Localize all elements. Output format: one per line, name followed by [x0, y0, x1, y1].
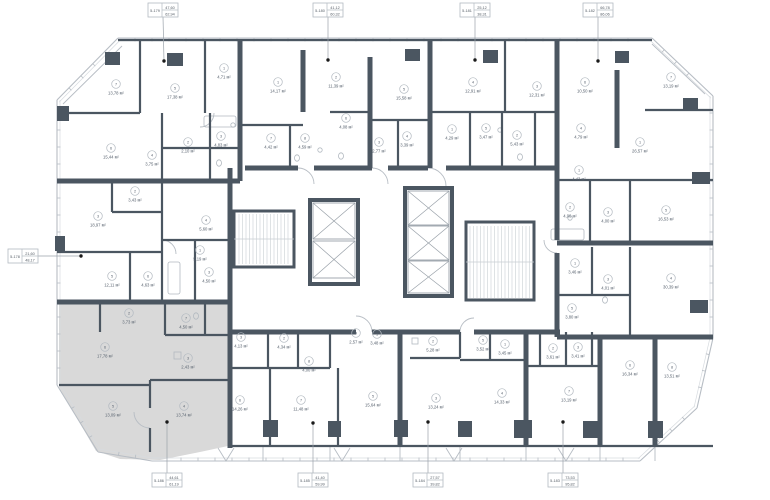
room-area: 30,39 м² [663, 285, 680, 290]
room-number: 5 [372, 394, 374, 398]
elevator-shaft [313, 241, 355, 278]
elevator-shaft [313, 203, 355, 239]
room-number: 5 [485, 126, 487, 130]
room-area: 17,38 м² [167, 95, 184, 100]
callout-area-bottom: 60,32 [330, 13, 340, 17]
room-area: 3,61 м² [546, 355, 560, 360]
room-area: 5,43 м² [510, 142, 524, 147]
room-number: 3 [187, 356, 189, 360]
callout-unit-id: 5-179 [150, 9, 160, 13]
column [57, 106, 69, 121]
room-number: 4 [205, 218, 207, 222]
callout-area-bottom: 48,17 [25, 259, 35, 263]
column [55, 236, 65, 251]
staircase-left [234, 211, 294, 267]
room-area: 4,43 м² [572, 177, 586, 182]
callout-area-top: 41,12 [330, 6, 340, 10]
staircase-right [466, 222, 534, 300]
room-area: 5,28 м² [426, 348, 440, 353]
room-area: 11,39 м² [328, 84, 344, 89]
room-number: 3 [208, 270, 210, 274]
room-area: 13,19 м² [561, 398, 578, 403]
room-number: 3 [577, 345, 579, 349]
callout-area-bottom: 62,94 [165, 13, 175, 17]
callout-area-top: 27,57 [430, 476, 440, 480]
room-area: 2,43 м² [181, 365, 195, 370]
callout-unit-id: 5-178 [10, 255, 20, 259]
room-number: 4 [472, 80, 474, 84]
room-number: 1 [376, 332, 378, 336]
room-number: 3 [536, 84, 538, 88]
room-number: 5 [111, 274, 113, 278]
callout-area-top: 41,40 [315, 476, 325, 480]
room-number: 5 [482, 338, 484, 342]
room-area: 5,19 м² [193, 257, 207, 262]
room-number: 2 [569, 205, 571, 209]
column [514, 420, 532, 438]
room-area: 13,78 м² [108, 91, 125, 96]
room-number: 5 [571, 306, 573, 310]
callout-dot [596, 59, 599, 62]
callout-area-top: 21,60 [25, 252, 35, 256]
room-number: 3 [435, 396, 437, 400]
room-area: 13,24 м² [428, 405, 445, 410]
room-number: 3 [378, 140, 380, 144]
room-number: 3 [607, 277, 609, 281]
callout-dot [473, 58, 476, 61]
room-area: 4,00 м² [563, 214, 577, 219]
room-area: 4,29 м² [445, 136, 459, 141]
callout-area-bottom: 95,82 [565, 483, 575, 487]
room-area: 13,19 м² [663, 84, 680, 89]
room-number: 5 [174, 86, 176, 90]
room-number: 7 [300, 398, 302, 402]
room-area: 4,13 м² [234, 344, 248, 349]
callout-dot [162, 59, 165, 62]
room-area: 10,50 м² [577, 89, 594, 94]
room-area: 5,60 м² [199, 227, 213, 232]
room-number: 1 [574, 261, 576, 265]
column [405, 49, 420, 61]
room-number: 7 [185, 316, 187, 320]
room-number: 4 [580, 126, 582, 130]
column [648, 421, 663, 438]
elevator-shaft [408, 226, 449, 260]
room-number: 5 [403, 87, 405, 91]
room-area: 12,91 м² [465, 89, 482, 94]
room-area: 13,51 м² [664, 374, 681, 379]
room-number: 7 [568, 389, 570, 393]
elevator-shaft [408, 191, 449, 225]
column [615, 51, 629, 63]
column [167, 53, 183, 66]
callout-area-top: 47,60 [165, 6, 175, 10]
room-number: 2 [552, 346, 554, 350]
room-area: 13,74 м² [176, 413, 193, 418]
room-number: 7 [270, 136, 272, 140]
room-area: 3,73 м² [122, 320, 136, 325]
column [683, 98, 698, 111]
callout-area-bottom: 38,31 [477, 13, 487, 17]
room-area: 11,48 м² [293, 407, 309, 412]
callout-area-bottom: 86,06 [600, 13, 610, 17]
room-number: 6 [584, 80, 586, 84]
callout-area-bottom: 59,99 [315, 483, 325, 487]
callout-unit-id: 5-185 [300, 479, 310, 483]
callout-dot [79, 254, 82, 257]
room-area: 3,52 м² [476, 347, 490, 352]
room-number: 7 [115, 82, 117, 86]
room-area: 16,34 м² [622, 372, 639, 377]
floor-plan-page: 713,78 м²517,38 м²14,71 м²615,44 м²22,10… [0, 0, 770, 500]
room-number: 2 [283, 336, 285, 340]
callout-dot [326, 58, 329, 61]
column [692, 172, 710, 184]
room-area: 14,17 м² [270, 89, 287, 94]
room-area: 3,75 м² [145, 162, 159, 167]
column [105, 52, 120, 65]
room-area: 4,42 м² [264, 145, 278, 150]
room-area: 14,26 м² [232, 407, 249, 412]
room-area: 3,41 м² [571, 354, 585, 359]
elevator-shaft [408, 261, 449, 293]
room-number: 4 [355, 331, 357, 335]
callout-area-top: 66,78 [600, 6, 610, 10]
room-number: 2 [335, 75, 337, 79]
room-area: 4,50 м² [179, 325, 193, 330]
room-number: 4 [183, 404, 185, 408]
room-area: 15,44 м² [103, 155, 120, 160]
room-area: 18,97 м² [90, 223, 107, 228]
callout-unit-id: 5-184 [415, 479, 425, 483]
room-area: 4,01 м² [601, 286, 615, 291]
room-area: 4,00 м² [601, 219, 615, 224]
callout-unit-id: 5-182 [585, 9, 595, 13]
room-area: 2,77 м² [372, 149, 386, 154]
column [328, 421, 341, 437]
callout-area-top: 44,61 [169, 476, 179, 480]
room-area: 16,53 м² [658, 217, 675, 222]
room-number: 7 [670, 75, 672, 79]
callout-area-bottom: 39,82 [430, 483, 440, 487]
room-number: 1 [451, 127, 453, 131]
callout-dot [311, 421, 314, 424]
callout-dot [561, 420, 564, 423]
room-number: 2 [128, 311, 130, 315]
floor-plan: 713,78 м²517,38 м²14,71 м²615,44 м²22,10… [0, 0, 770, 500]
room-number: 2 [187, 140, 189, 144]
room-area: 2,10 м² [181, 149, 195, 154]
room-area: 15,58 м² [396, 96, 413, 101]
callout-unit-id: 5-183 [550, 479, 560, 483]
room-area: 26,57 м² [632, 149, 649, 154]
room-number: 4 [151, 153, 153, 157]
room-number: 5 [112, 404, 114, 408]
callout-unit-id: 5-180 [315, 9, 325, 13]
room-area: 12,11 м² [104, 283, 120, 288]
callout-area-top: 25,12 [477, 6, 487, 10]
room-number: 1 [504, 342, 506, 346]
room-number: 1 [277, 80, 279, 84]
room-number: 1 [223, 66, 225, 70]
room-area: 3,39 м² [400, 143, 414, 148]
room-area: 3,45 м² [498, 351, 512, 356]
room-area: 3,43 м² [128, 198, 142, 203]
room-number: 1 [578, 168, 580, 172]
room-area: 13,09 м² [105, 413, 122, 418]
callout-dot [165, 420, 168, 423]
room-area: 4,34 м² [277, 345, 291, 350]
room-number: 6 [239, 398, 241, 402]
column [583, 421, 599, 438]
room-area: 3,48 м² [370, 341, 384, 346]
room-area: 4,83 м² [214, 143, 228, 148]
room-number: 3 [607, 210, 609, 214]
room-area: 4,59 м² [298, 145, 312, 150]
room-area: 2,57 м² [349, 340, 363, 345]
column [458, 421, 472, 437]
callout-area-bottom: 61,19 [169, 483, 179, 487]
room-number: 5 [665, 208, 667, 212]
room-area: 4,00 м² [302, 368, 316, 373]
room-area: 4,50 м² [202, 279, 216, 284]
room-number: 2 [134, 189, 136, 193]
room-number: 3 [240, 335, 242, 339]
column [263, 420, 278, 437]
room-number: 6 [629, 363, 631, 367]
column [483, 50, 498, 63]
room-area: 15,64 м² [365, 403, 382, 408]
callout-unit-id: 5-181 [462, 9, 472, 13]
room-area: 4,79 м² [574, 135, 588, 140]
room-area: 17,78 м² [97, 354, 114, 359]
room-number: 3 [97, 214, 99, 218]
callout-dot [426, 420, 429, 423]
callout-area-top: 73,53 [565, 476, 575, 480]
room-area: 4,71 м² [217, 75, 231, 80]
room-number: 6 [147, 274, 149, 278]
room-number: 8 [304, 136, 306, 140]
room-number: 6 [345, 116, 347, 120]
room-number: 1 [199, 248, 201, 252]
room-number: 6 [104, 345, 106, 349]
column [690, 300, 708, 313]
callout-unit-id: 5-186 [154, 479, 164, 483]
room-number: 2 [432, 339, 434, 343]
room-area: 3,80 м² [565, 315, 579, 320]
column [394, 420, 408, 437]
room-number: 8 [671, 365, 673, 369]
room-area: 4,08 м² [339, 125, 353, 130]
room-area: 3,46 м² [568, 270, 582, 275]
room-area: 3,47 м² [479, 135, 493, 140]
room-area: 12,31 м² [529, 93, 546, 98]
room-number: 6 [110, 146, 112, 150]
room-number: 1 [639, 140, 641, 144]
room-number: 8 [308, 359, 310, 363]
room-number: 4 [670, 276, 672, 280]
room-area: 14,33 м² [494, 400, 511, 405]
room-area: 4,63 м² [141, 283, 155, 288]
room-number: 4 [501, 391, 503, 395]
room-number: 3 [220, 134, 222, 138]
room-number: 2 [516, 133, 518, 137]
room-number: 4 [406, 134, 408, 138]
